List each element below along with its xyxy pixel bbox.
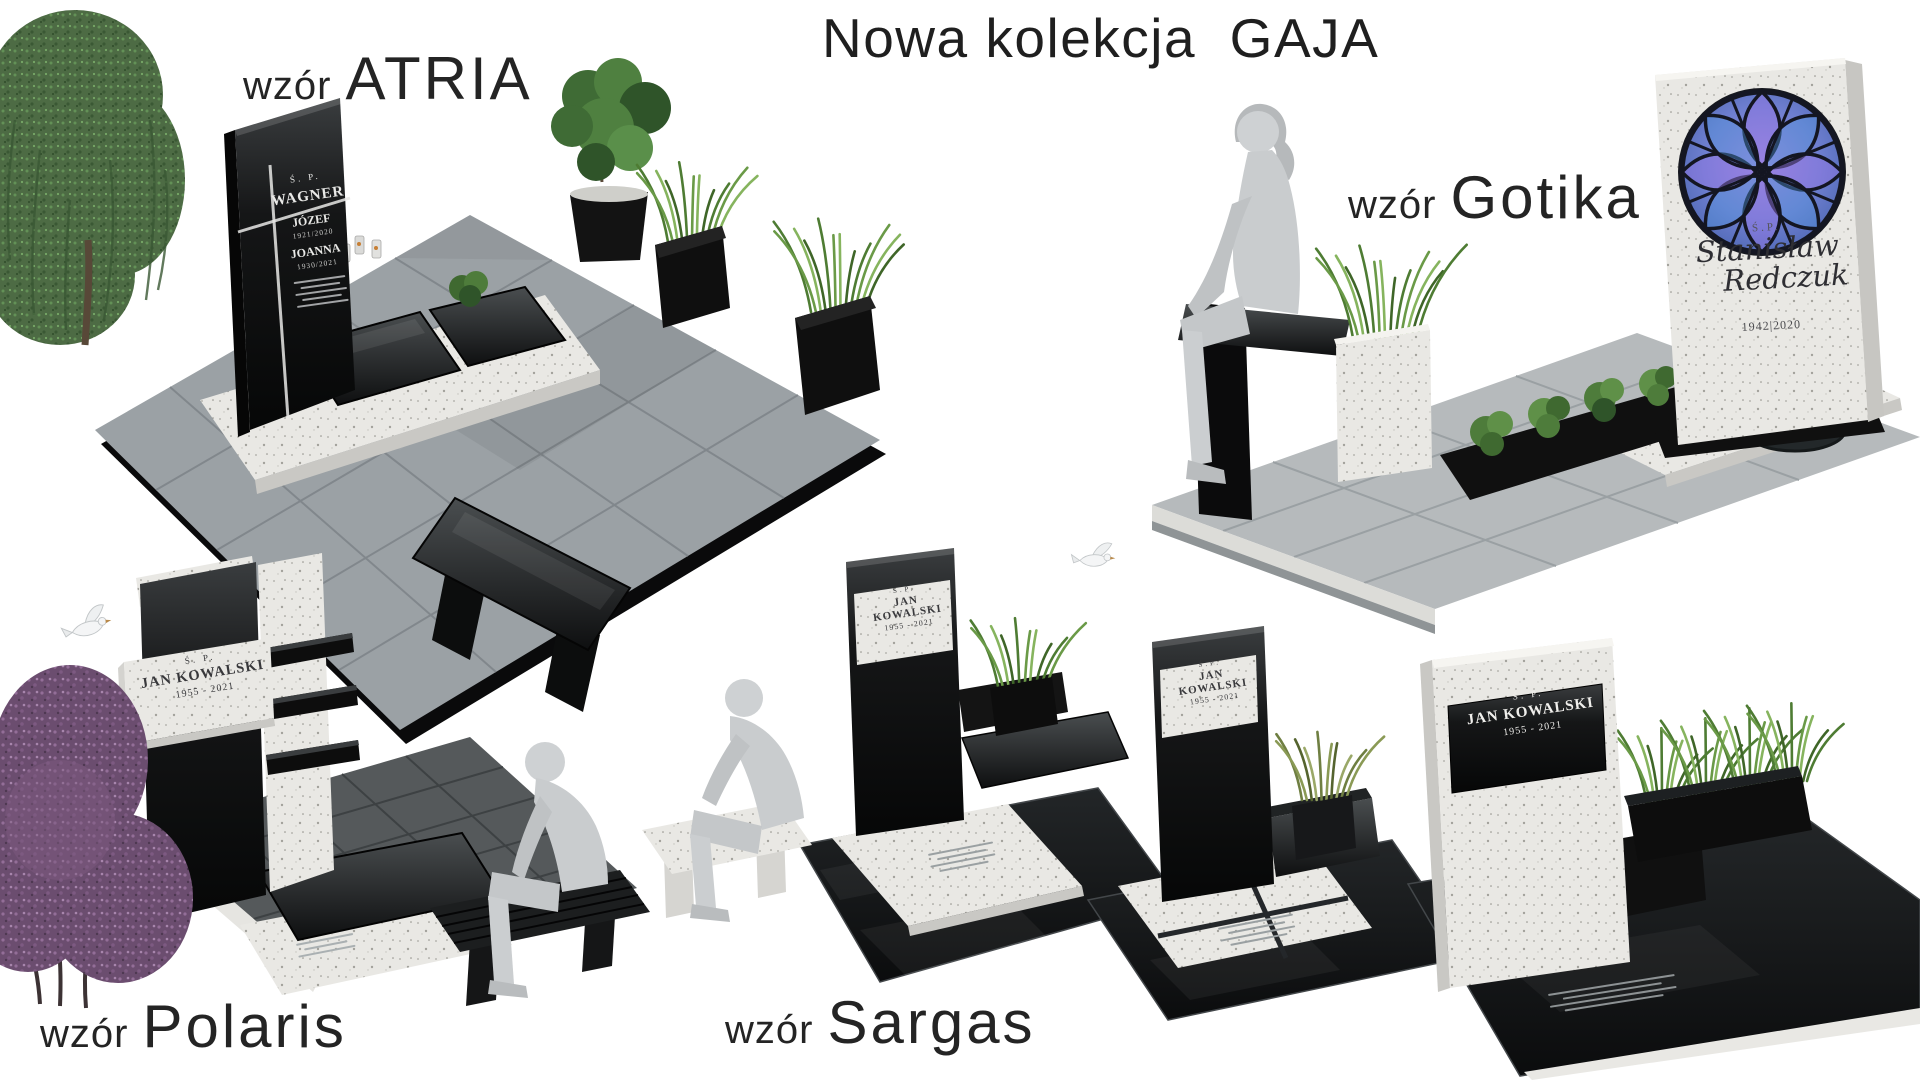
label-atria-prefix: wzór — [243, 64, 331, 109]
dove-icon-2 — [1070, 539, 1116, 568]
label-gotika-name: Gotika — [1450, 163, 1641, 232]
ficus-tree — [551, 58, 671, 262]
label-atria-name: ATRIA — [345, 44, 532, 113]
monument-renders-artwork — [0, 0, 1920, 1080]
poster-title: Nowa kolekcja GAJA — [822, 6, 1379, 70]
label-polaris-prefix: wzór — [40, 1012, 128, 1057]
label-sargas-prefix: wzór — [725, 1008, 813, 1053]
poster-canvas: Nowa kolekcja GAJA wzór ATRIA wzór Gotik… — [0, 0, 1920, 1080]
gotika-inscription: Ś.P. Stanisław Redczuk 1942|2020 — [1682, 217, 1856, 338]
label-sargas: wzór Sargas — [725, 988, 1036, 1057]
grass-planter-far — [774, 219, 904, 415]
label-polaris: wzór Polaris — [40, 992, 347, 1061]
gotika-scene — [1152, 58, 1920, 634]
label-sargas-name: Sargas — [827, 988, 1035, 1057]
tree-planter — [570, 192, 648, 262]
label-gotika: wzór Gotika — [1348, 163, 1642, 232]
gotika-last-name: Redczuk — [1718, 260, 1853, 297]
sitting-man-statue-2 — [690, 679, 804, 922]
atria-inscription: Ś. P. WAGNER JÓZEF 1921/2020 JOANNA 1930… — [252, 165, 375, 311]
sargas-side-scene — [1088, 626, 1472, 1020]
atria-scene — [0, 10, 904, 744]
willow-tree — [0, 10, 185, 345]
label-gotika-prefix: wzór — [1348, 183, 1436, 228]
label-atria: wzór ATRIA — [243, 44, 533, 113]
dove-icon — [59, 604, 113, 639]
label-polaris-name: Polaris — [142, 992, 346, 1061]
grass-planter-near — [637, 162, 757, 328]
